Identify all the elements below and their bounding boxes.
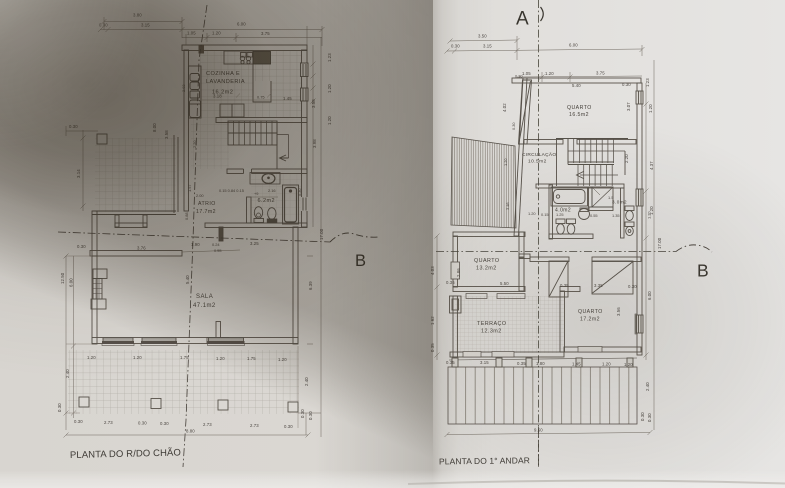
svg-text:0.30: 0.30 [297, 188, 302, 196]
svg-text:1.20: 1.20 [545, 71, 554, 76]
svg-text:0.35: 0.35 [446, 360, 455, 365]
svg-text:PLANTA DO 1° ANDAR: PLANTA DO 1° ANDAR [439, 455, 530, 466]
svg-text:0.24: 0.24 [212, 242, 220, 247]
svg-text:3.14: 3.14 [76, 169, 81, 178]
svg-text:2.73: 2.73 [104, 420, 113, 425]
svg-text:0.55: 0.55 [590, 213, 598, 218]
svg-text:3.15: 3.15 [483, 44, 492, 49]
svg-text:2.20: 2.20 [192, 140, 197, 148]
svg-text:4.03: 4.03 [430, 266, 435, 275]
svg-text:1.20: 1.20 [503, 158, 508, 166]
svg-text:0.36: 0.36 [446, 280, 455, 285]
svg-text:3.98: 3.98 [312, 139, 317, 148]
svg-text:3.35: 3.35 [594, 283, 603, 288]
svg-text:0.30: 0.30 [57, 403, 62, 412]
svg-text:1.20: 1.20 [216, 356, 225, 361]
svg-text:3.07: 3.07 [626, 102, 631, 111]
svg-text:5.50: 5.50 [500, 281, 509, 286]
svg-text:1.20: 1.20 [212, 31, 221, 36]
svg-text:17.7m2: 17.7m2 [196, 209, 216, 215]
svg-text:1.75: 1.75 [247, 356, 256, 361]
svg-text:1.23: 1.23 [327, 53, 332, 62]
svg-text:0.35: 0.35 [560, 283, 569, 288]
svg-text:0.30: 0.30 [300, 409, 305, 418]
svg-text:3.25: 3.25 [250, 241, 259, 246]
svg-text:1.45: 1.45 [572, 362, 581, 367]
svg-text:PLANTA DO R/DO CHÃO: PLANTA DO R/DO CHÃO [70, 447, 181, 461]
svg-text:B: B [355, 252, 366, 270]
svg-text:A: A [516, 9, 529, 30]
svg-text:2.00: 2.00 [196, 193, 204, 198]
svg-text:QUARTO: QUARTO [474, 258, 500, 264]
svg-text:0.30: 0.30 [69, 124, 78, 129]
svg-text:2.40: 2.40 [645, 382, 650, 391]
svg-text:0.30: 0.30 [622, 82, 631, 87]
svg-text:0.30: 0.30 [138, 421, 147, 426]
svg-text:1.20: 1.20 [648, 104, 653, 113]
svg-text:4.0m2: 4.0m2 [555, 208, 571, 214]
svg-text:13.2m2: 13.2m2 [476, 266, 497, 272]
svg-text:8.80: 8.80 [186, 429, 195, 434]
svg-text:1.20: 1.20 [87, 355, 96, 360]
svg-text:16.5m2: 16.5m2 [569, 112, 589, 118]
svg-text:16.2m2: 16.2m2 [212, 90, 233, 96]
svg-text:5.40: 5.40 [185, 275, 190, 284]
svg-text:8.00: 8.00 [152, 123, 157, 132]
svg-text:3.56: 3.56 [616, 307, 621, 316]
svg-text:1.20: 1.20 [327, 116, 332, 125]
svg-text:QUARTO: QUARTO [567, 105, 592, 111]
svg-text:1.20: 1.20 [602, 362, 611, 367]
svg-text:3.46: 3.46 [505, 202, 510, 210]
svg-text:1.90: 1.90 [191, 242, 200, 247]
svg-text:CIRCULAÇÃO: CIRCULAÇÃO [522, 151, 556, 158]
svg-text:1.80: 1.80 [536, 361, 545, 366]
svg-text:LAVANDERIA: LAVANDERIA [206, 79, 245, 85]
svg-text:0.88: 0.88 [184, 212, 189, 220]
svg-text:0.55: 0.55 [214, 248, 222, 253]
svg-text:3.75: 3.75 [261, 31, 270, 36]
svg-text:6.00: 6.00 [569, 43, 578, 48]
svg-text:0.30: 0.30 [284, 424, 293, 429]
svg-text:10.5m2: 10.5m2 [528, 159, 547, 165]
svg-text:1.20: 1.20 [278, 357, 287, 362]
svg-text:12.3m2: 12.3m2 [481, 329, 502, 335]
svg-text:2.73: 2.73 [203, 422, 212, 427]
svg-text:1.62: 1.62 [430, 316, 435, 325]
svg-text:1.35: 1.35 [612, 213, 620, 218]
svg-text:3.15: 3.15 [480, 360, 489, 365]
svg-text:B: B [697, 261, 709, 281]
svg-text:TERRAÇO: TERRAÇO [477, 321, 507, 327]
svg-text:COZINHA E: COZINHA E [206, 71, 240, 77]
svg-text:6.39: 6.39 [308, 281, 313, 290]
svg-text:6.2m2: 6.2m2 [258, 198, 276, 204]
svg-text:3.58: 3.58 [164, 130, 169, 139]
svg-text:4.02: 4.02 [502, 103, 507, 112]
svg-text:3.03: 3.03 [181, 84, 186, 92]
svg-text:2.16: 2.16 [268, 188, 276, 193]
svg-text:SALA: SALA [196, 294, 213, 300]
svg-text:0.30: 0.30 [74, 419, 83, 424]
svg-text:6.00: 6.00 [237, 22, 246, 27]
svg-text:47.1m2: 47.1m2 [193, 303, 216, 309]
svg-text:2.40: 2.40 [65, 369, 70, 378]
svg-text:6.00: 6.00 [647, 291, 652, 300]
svg-text:0.30: 0.30 [99, 23, 108, 28]
svg-text:1.20: 1.20 [624, 362, 633, 367]
svg-text:0.15: 0.15 [541, 212, 549, 217]
svg-text:3.15: 3.15 [141, 23, 150, 28]
svg-text:3.58: 3.58 [311, 99, 316, 108]
svg-text:12.50: 12.50 [60, 272, 65, 284]
svg-text:0.75: 0.75 [257, 95, 265, 100]
svg-text:QUARTO: QUARTO [578, 309, 603, 315]
svg-text:1.75: 1.75 [180, 355, 189, 360]
svg-text:17.00: 17.00 [319, 228, 324, 240]
svg-text:3.50: 3.50 [478, 34, 487, 39]
svg-text:3.76: 3.76 [137, 246, 146, 251]
svg-text:0.30: 0.30 [160, 421, 169, 426]
svg-text:0.35: 0.35 [430, 343, 435, 352]
svg-text:2.73: 2.73 [250, 423, 259, 428]
svg-text:1.20: 1.20 [133, 355, 142, 360]
svg-text:0.30: 0.30 [640, 412, 645, 421]
svg-text:1.05: 1.05 [187, 31, 196, 36]
svg-text:0.30: 0.30 [77, 244, 86, 249]
svg-text:1.20: 1.20 [528, 211, 536, 216]
svg-text:0.30: 0.30 [515, 74, 523, 79]
svg-text:5.40: 5.40 [572, 83, 581, 88]
svg-text:0.35: 0.35 [517, 361, 526, 366]
svg-text:ATRIO: ATRIO [198, 201, 216, 207]
svg-text:17.00: 17.00 [657, 237, 662, 249]
svg-text:1.45: 1.45 [283, 96, 292, 101]
svg-text:4.37: 4.37 [649, 161, 654, 170]
svg-text:6.00: 6.00 [69, 278, 74, 287]
svg-text:0.30: 0.30 [647, 413, 652, 422]
svg-text:0.30: 0.30 [628, 284, 637, 289]
svg-text:2.86: 2.86 [456, 268, 461, 277]
svg-text:0.30: 0.30 [451, 44, 460, 49]
svg-text:3.0m2: 3.0m2 [612, 200, 627, 205]
svg-text:2.20: 2.20 [624, 154, 629, 163]
svg-text:3.80: 3.80 [133, 13, 142, 18]
svg-text:0.30: 0.30 [308, 411, 313, 420]
svg-text:+9: +9 [254, 191, 258, 196]
svg-text:1.57: 1.57 [187, 184, 192, 192]
svg-text:2.40: 2.40 [304, 377, 309, 386]
svg-text:0.15 0.84 0.15: 0.15 0.84 0.15 [219, 188, 244, 193]
svg-text:1.20: 1.20 [647, 211, 652, 219]
svg-text:0.30: 0.30 [511, 122, 516, 130]
svg-text:1.05: 1.05 [522, 71, 531, 76]
svg-text:3.75: 3.75 [596, 71, 605, 76]
svg-text:17.2m2: 17.2m2 [580, 317, 600, 323]
svg-text:1.20: 1.20 [327, 84, 332, 93]
